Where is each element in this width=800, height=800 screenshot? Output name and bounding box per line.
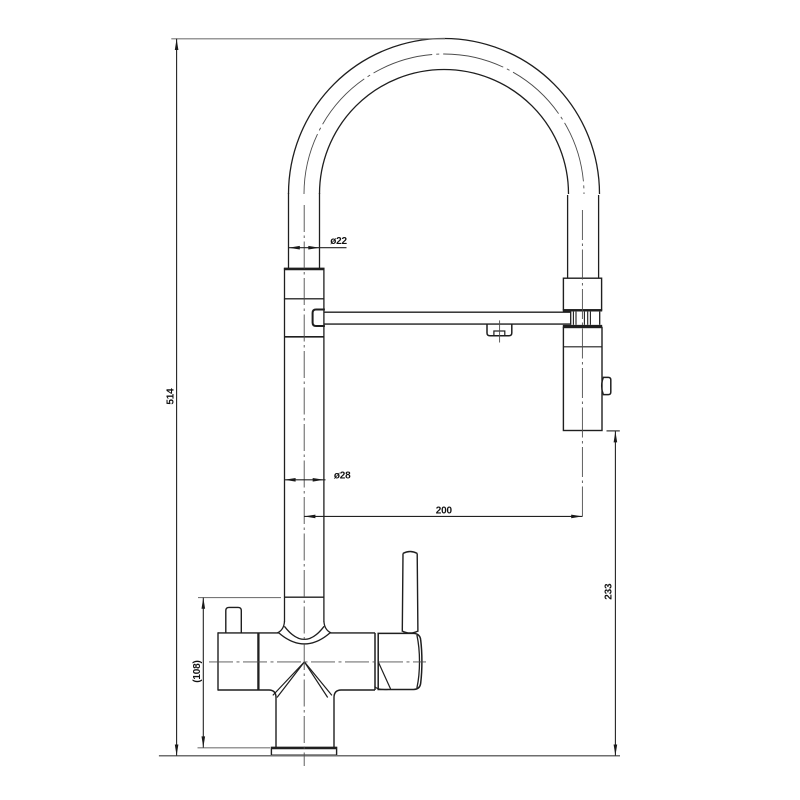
- svg-text:(108): (108): [192, 660, 203, 682]
- svg-text:200: 200: [436, 506, 453, 517]
- svg-text:ø22: ø22: [330, 236, 347, 247]
- svg-text:514: 514: [166, 388, 177, 405]
- svg-text:233: 233: [604, 583, 615, 600]
- svg-text:ø28: ø28: [334, 470, 351, 481]
